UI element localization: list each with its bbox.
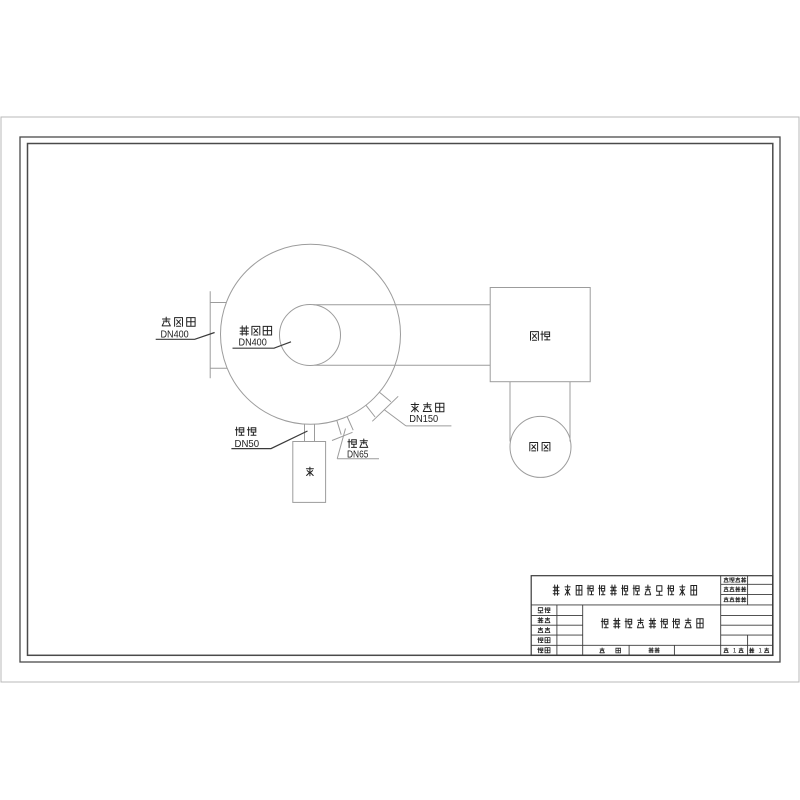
svg-text:DN400: DN400 [161,328,189,340]
svg-text:DN150: DN150 [409,413,438,425]
svg-text:1: 1 [758,647,762,654]
svg-text:DN400: DN400 [239,337,267,349]
svg-text:1: 1 [733,647,737,654]
